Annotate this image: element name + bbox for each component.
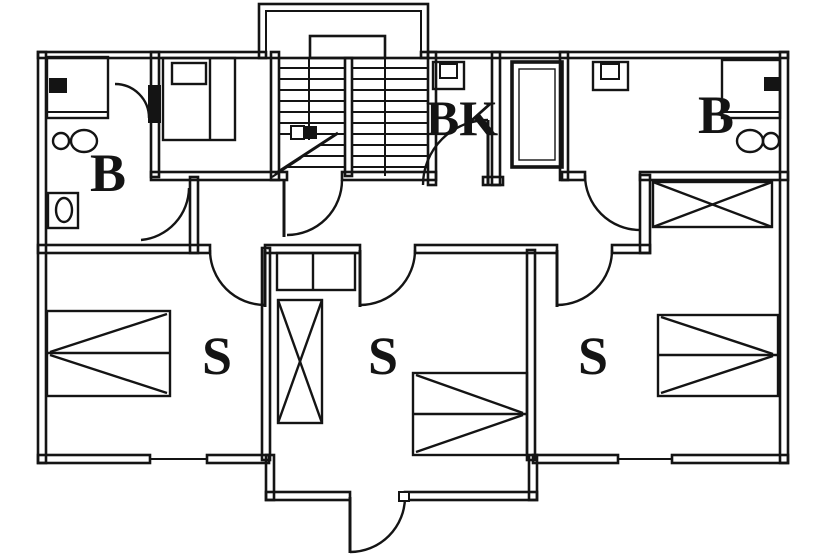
label-bk-room: BK [426,90,498,146]
label-bedroom-left: S [202,326,232,386]
door-arc-bedroom-left [210,250,265,305]
bed-left-icon [47,311,170,396]
stair-divider [345,58,352,176]
door-arc-bath-left [115,84,149,118]
closet-middle-icon [277,253,355,290]
shaft [512,62,562,167]
wardrobe-middle-icon [278,300,322,423]
bed-top-icon [163,58,235,140]
shower-left-icon [47,57,108,118]
floor-plan-drawing: B BK B S S S [0,0,829,555]
label-bedroom-middle: S [368,326,398,386]
door-arc-bath-left-lower [141,188,189,240]
floor-plan-page: B BK B S S S [0,0,829,555]
sink-bk-icon [433,62,464,89]
stair-marker-filled [304,126,317,139]
label-bedroom-right: S [578,326,608,386]
stair-landing [310,36,385,58]
toilet-right-icon [737,130,779,152]
stair-marker-open [291,126,304,139]
door-hinge-entrance [399,492,409,501]
bed-middle-icon [413,373,527,455]
door-arc-entrance [350,497,405,552]
door-arc-bedroom-middle [360,250,415,305]
label-bath-left: B [90,143,126,203]
stair-bay [259,4,428,58]
label-bath-right: B [698,85,734,145]
door-arc-landing [287,180,342,235]
wardrobe-right-icon [653,182,772,227]
door-arc-bath-right [585,175,640,230]
door-arc-bedroom-right [557,250,612,305]
bed-right-icon [658,315,778,396]
sink-left-icon [48,193,78,228]
sink-right-icon [593,62,628,90]
